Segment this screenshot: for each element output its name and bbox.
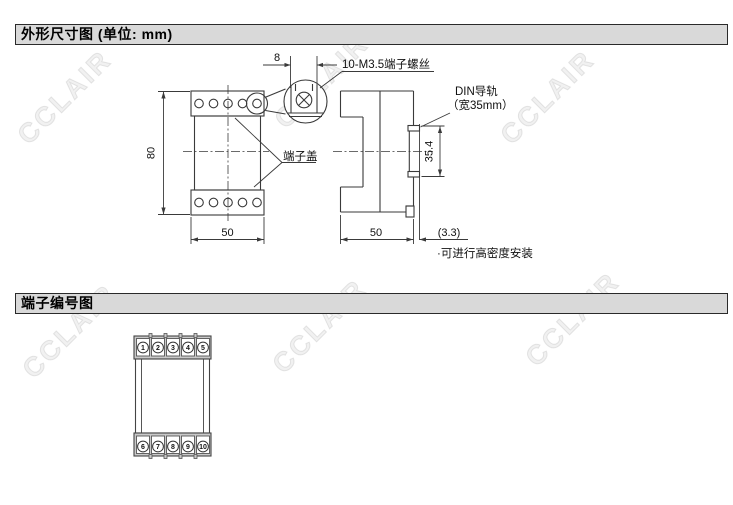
- dimension-front-width: 50: [191, 217, 264, 244]
- dim-front-height: 80: [146, 147, 158, 159]
- screw-detail-callout: [247, 80, 328, 123]
- terminal-cover-label: 端子盖: [283, 149, 318, 163]
- dim-side-depth: 50: [370, 227, 382, 239]
- terminal-number: 2: [156, 345, 160, 352]
- centerlines: [183, 85, 269, 221]
- datasheet-page: CCLAIR CCLAIR CCLAIR CCLAIR CCLAIR CCLAI…: [0, 0, 733, 505]
- din-rail-label-line2: （宽35mm）: [447, 98, 513, 112]
- dimension-drawing: 8 10-M3.5端子螺丝 端子盖 80: [0, 0, 733, 505]
- dim-screw-pitch: 8: [274, 52, 280, 64]
- terminal-number: 10: [199, 444, 207, 451]
- terminal-row-top: 12345: [137, 339, 210, 357]
- section-header-terminal-numbering: 端子编号图: [15, 293, 728, 314]
- screw-callout-label: 10-M3.5端子螺丝: [342, 58, 430, 71]
- terminal-diagram: 12345 678910: [134, 334, 211, 459]
- terminal-number: 7: [156, 444, 160, 451]
- din-rail-label-group: DIN导轨 （宽35mm）: [421, 84, 514, 127]
- side-view: [333, 91, 433, 240]
- dim-rail-span: 35.4: [424, 141, 436, 162]
- terminal-number: 1: [141, 345, 145, 352]
- terminal-number: 4: [186, 345, 190, 352]
- front-view: [183, 85, 269, 221]
- dim-front-width: 50: [221, 227, 233, 239]
- din-rail-label-line1: DIN导轨: [455, 84, 498, 98]
- terminal-number: 9: [186, 444, 190, 451]
- din-release-clip: [406, 206, 414, 217]
- dimension-front-height: 80: [146, 92, 191, 215]
- high-density-note: ·可进行高密度安装: [437, 246, 533, 260]
- dimension-side-depth: 50: [341, 215, 414, 244]
- dimension-rail-offset: (3.3): [420, 227, 469, 242]
- terminal-row-bottom: 678910: [137, 436, 210, 454]
- terminal-number: 5: [201, 345, 205, 352]
- dimension-rail-span: 35.4: [422, 126, 445, 177]
- terminal-number: 8: [171, 444, 175, 451]
- screw-label-group: 10-M3.5端子螺丝: [320, 58, 434, 88]
- terminal-number: 3: [171, 345, 175, 352]
- terminal-cover-label-group: 端子盖: [235, 118, 318, 187]
- dim-rail-offset: (3.3): [438, 227, 461, 239]
- section-header-outline-dimensions: 外形尺寸图 (单位: mm): [15, 24, 728, 45]
- terminal-number: 6: [141, 444, 145, 451]
